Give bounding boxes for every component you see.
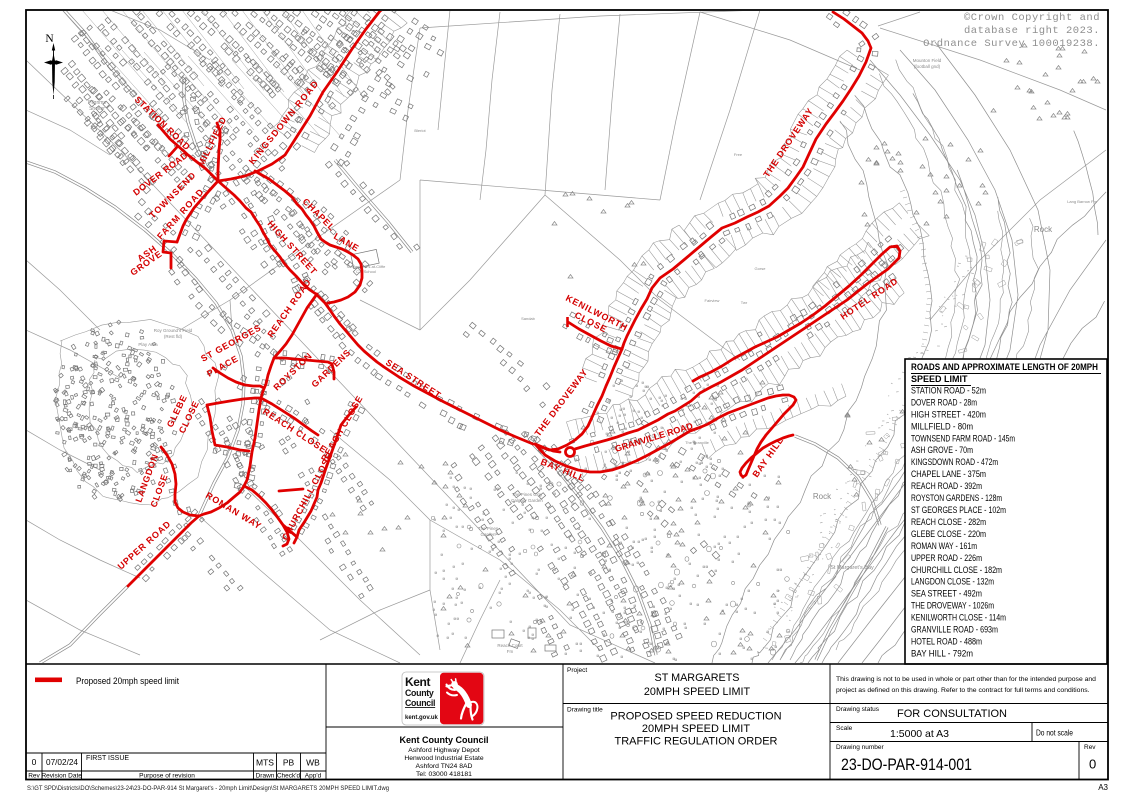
svg-text:PB: PB bbox=[283, 758, 295, 768]
svg-text:Garden: Garden bbox=[480, 532, 496, 537]
svg-text:HOTEL ROAD - 488m: HOTEL ROAD - 488m bbox=[911, 637, 982, 647]
svg-text:Mounton Field: Mounton Field bbox=[913, 58, 942, 63]
svg-text:LANGDON CLOSE - 132m: LANGDON CLOSE - 132m bbox=[911, 577, 994, 587]
svg-text:REACH ROAD - 392m: REACH ROAD - 392m bbox=[911, 481, 982, 491]
svg-text:ROADS AND APPROXIMATE LENGTH O: ROADS AND APPROXIMATE LENGTH OF 20MPH bbox=[911, 362, 1098, 372]
svg-text:ROYSTON GARDENS - 128m: ROYSTON GARDENS - 128m bbox=[911, 493, 1002, 503]
svg-text:Revision Date: Revision Date bbox=[41, 773, 82, 780]
svg-text:The Granville: The Granville bbox=[685, 440, 710, 445]
svg-text:Reach Court: Reach Court bbox=[497, 643, 523, 648]
svg-text:Do not scale: Do not scale bbox=[1036, 728, 1073, 738]
svg-text:REACH CLOSE - 282m: REACH CLOSE - 282m bbox=[911, 517, 986, 527]
svg-text:C P School: C P School bbox=[356, 269, 376, 274]
svg-text:Drawn: Drawn bbox=[256, 773, 275, 780]
svg-text:Kent: Kent bbox=[405, 675, 430, 689]
svg-text:MTS: MTS bbox=[256, 758, 274, 768]
svg-text:Shelter: Shelter bbox=[89, 106, 105, 112]
svg-text:database right 2023.: database right 2023. bbox=[964, 25, 1100, 37]
svg-text:Fairview: Fairview bbox=[705, 298, 720, 303]
svg-text:Rock: Rock bbox=[1034, 225, 1053, 234]
svg-text:CHAPEL LANE - 375m: CHAPEL LANE - 375m bbox=[911, 469, 986, 479]
svg-text:0: 0 bbox=[1089, 757, 1096, 772]
svg-text:(football gnd): (football gnd) bbox=[914, 64, 941, 69]
svg-text:KENILWORTH CLOSE - 114m: KENILWORTH CLOSE - 114m bbox=[911, 613, 1006, 623]
svg-text:STATION ROAD - 52m: STATION ROAD - 52m bbox=[911, 386, 986, 396]
svg-text:Free: Free bbox=[734, 152, 743, 157]
svg-text:Play Area: Play Area bbox=[138, 342, 158, 347]
svg-text:Check'd: Check'd bbox=[277, 773, 301, 780]
svg-text:TOWNSEND FARM ROAD - 145m: TOWNSEND FARM ROAD - 145m bbox=[911, 433, 1015, 443]
svg-text:County: County bbox=[405, 688, 434, 698]
svg-text:WB: WB bbox=[306, 758, 320, 768]
svg-text:CHURCHILL CLOSE - 182m: CHURCHILL CLOSE - 182m bbox=[911, 565, 1002, 575]
svg-text:Drawing number: Drawing number bbox=[836, 744, 885, 751]
svg-text:©Crown Copyright and: ©Crown Copyright and bbox=[964, 12, 1100, 24]
svg-text:FOR CONSULTATION: FOR CONSULTATION bbox=[897, 708, 1007, 720]
svg-text:Ordnance Survey 100019238.: Ordnance Survey 100019238. bbox=[923, 38, 1100, 50]
svg-text:Fm: Fm bbox=[507, 649, 514, 654]
svg-text:GLEBE CLOSE - 220m: GLEBE CLOSE - 220m bbox=[911, 529, 986, 539]
svg-text:Project: Project bbox=[567, 667, 587, 674]
svg-text:Council: Council bbox=[405, 698, 435, 708]
svg-text:20MPH SPEED LIMIT: 20MPH SPEED LIMIT bbox=[644, 686, 751, 698]
svg-text:The Pines: The Pines bbox=[478, 526, 499, 531]
svg-text:App'd: App'd bbox=[305, 773, 322, 780]
svg-text:TRAFFIC REGULATION ORDER: TRAFFIC REGULATION ORDER bbox=[615, 736, 778, 748]
svg-text:N: N bbox=[45, 33, 54, 45]
svg-text:Drawing title: Drawing title bbox=[567, 707, 603, 714]
svg-text:23-DO-PAR-914-001: 23-DO-PAR-914-001 bbox=[841, 755, 972, 774]
svg-text:SPEED LIMIT: SPEED LIMIT bbox=[911, 374, 968, 384]
svg-text:Ashford Highway Depot: Ashford Highway Depot bbox=[408, 747, 480, 754]
svg-text:GRANVILLE ROAD - 693m: GRANVILLE ROAD - 693m bbox=[911, 625, 998, 635]
svg-text:Twr: Twr bbox=[741, 300, 748, 305]
svg-text:St Margaret's Bay: St Margaret's Bay bbox=[830, 565, 874, 571]
svg-text:Calgary Garden: Calgary Garden bbox=[511, 498, 543, 503]
svg-text:Rock: Rock bbox=[813, 492, 832, 501]
svg-text:Purpose of revision: Purpose of revision bbox=[139, 773, 195, 780]
svg-text:07/02/24: 07/02/24 bbox=[46, 757, 78, 767]
svg-text:FIRST ISSUE: FIRST ISSUE bbox=[86, 755, 129, 762]
svg-text:ST GEORGES PLACE - 102m: ST GEORGES PLACE - 102m bbox=[911, 505, 1006, 515]
svg-text:Tel: 03000 418181: Tel: 03000 418181 bbox=[416, 771, 472, 778]
svg-text:A3: A3 bbox=[1098, 783, 1108, 792]
svg-text:Rev: Rev bbox=[1084, 744, 1096, 751]
svg-text:PROPOSED SPEED REDUCTION: PROPOSED SPEED REDUCTION bbox=[610, 711, 781, 723]
svg-text:SEA STREET - 492m: SEA STREET - 492m bbox=[911, 589, 982, 599]
svg-text:kent.gov.uk: kent.gov.uk bbox=[405, 715, 439, 721]
svg-text:S:\GT SPD\Districts\DO\Schemes: S:\GT SPD\Districts\DO\Schemes\23-24\23-… bbox=[27, 785, 389, 792]
svg-text:project as defined on this dra: project as defined on this drawing. Refe… bbox=[836, 687, 1090, 694]
svg-text:Drawing status: Drawing status bbox=[836, 706, 880, 713]
svg-text:This drawing is not to be used: This drawing is not to be used in whole … bbox=[836, 676, 1096, 683]
svg-text:0: 0 bbox=[32, 757, 37, 767]
svg-text:Bleriot: Bleriot bbox=[414, 128, 426, 133]
svg-text:1:5000 at A3: 1:5000 at A3 bbox=[890, 728, 949, 740]
svg-text:ST MARGARETS: ST MARGARETS bbox=[655, 672, 740, 684]
svg-text:Scale: Scale bbox=[836, 725, 853, 732]
svg-text:BAY HILL - 792m: BAY HILL - 792m bbox=[911, 648, 973, 658]
svg-text:(Rest fld): (Rest fld) bbox=[164, 334, 183, 339]
svg-text:Roy Ground's Field: Roy Ground's Field bbox=[154, 328, 193, 333]
svg-text:DOVER ROAD - 28m: DOVER ROAD - 28m bbox=[911, 397, 977, 407]
svg-text:Proposed 20mph speed limit: Proposed 20mph speed limit bbox=[76, 676, 179, 687]
svg-text:KINGSDOWN ROAD - 472m: KINGSDOWN ROAD - 472m bbox=[911, 457, 998, 467]
svg-text:Kent County Council: Kent County Council bbox=[400, 735, 489, 745]
svg-text:THE DROVEWAY - 1026m: THE DROVEWAY - 1026m bbox=[911, 601, 994, 611]
svg-text:UPPER ROAD - 226m: UPPER ROAD - 226m bbox=[911, 553, 982, 563]
svg-text:The Pines Clgy: The Pines Clgy bbox=[512, 492, 543, 497]
svg-text:20MPH SPEED LIMIT: 20MPH SPEED LIMIT bbox=[642, 723, 750, 735]
svg-text:Lang Barrow Fm: Lang Barrow Fm bbox=[1067, 199, 1097, 204]
svg-text:ROMAN WAY - 161m: ROMAN WAY - 161m bbox=[911, 541, 977, 551]
svg-text:MILLFIELD - 80m: MILLFIELD - 80m bbox=[911, 421, 973, 431]
svg-text:Ashford TN24 8AD: Ashford TN24 8AD bbox=[416, 763, 473, 770]
svg-text:Gorse: Gorse bbox=[755, 266, 767, 271]
svg-text:ASH GROVE - 70m: ASH GROVE - 70m bbox=[911, 445, 973, 455]
svg-text:Rev: Rev bbox=[28, 773, 40, 780]
svg-text:HIGH STREET - 420m: HIGH STREET - 420m bbox=[911, 409, 986, 419]
svg-text:Sandab: Sandab bbox=[521, 316, 536, 321]
svg-text:Henwood Industrial Estate: Henwood Industrial Estate bbox=[404, 755, 484, 762]
